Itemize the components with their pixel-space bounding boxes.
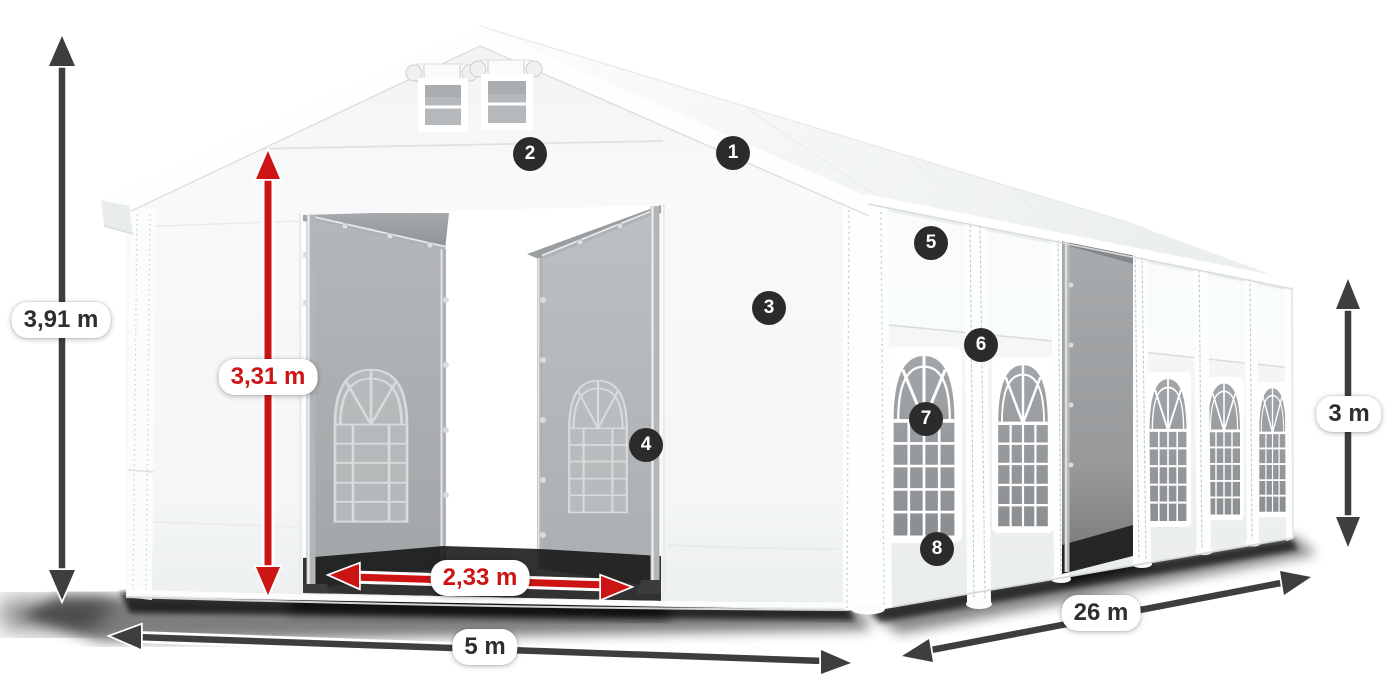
label-side-height: 3 m — [1316, 396, 1381, 432]
marker-7: 7 — [909, 402, 943, 436]
tent-dimensions-diagram: 3,91 m 3,31 m 2,33 m 5 m 26 m 3 m 1 2 3 … — [0, 0, 1400, 700]
marker-6: 6 — [964, 328, 998, 362]
door-window-print — [335, 370, 407, 522]
marker-3: 3 — [752, 291, 786, 325]
label-length: 26 m — [1062, 595, 1141, 631]
label-entrance-height: 3,31 m — [219, 359, 318, 395]
marker-8: 8 — [920, 532, 954, 566]
entrance — [293, 203, 675, 601]
right-door-panel — [539, 209, 659, 588]
label-entrance-width: 2,33 m — [431, 560, 530, 596]
marker-2: 2 — [513, 137, 547, 171]
marker-1: 1 — [716, 136, 750, 170]
front-left-corner-strap — [126, 208, 156, 600]
label-total-height: 3,91 m — [12, 302, 111, 338]
door-window-print — [569, 381, 627, 513]
front-right-corner-strap — [843, 203, 892, 615]
side-entrance-opening — [1062, 233, 1133, 574]
tent-illustration — [0, 0, 1400, 700]
label-front-width: 5 m — [452, 629, 517, 665]
left-door-panel — [307, 216, 449, 592]
far-end-edge — [1292, 283, 1293, 538]
marker-5: 5 — [914, 226, 948, 260]
marker-4: 4 — [629, 428, 663, 462]
